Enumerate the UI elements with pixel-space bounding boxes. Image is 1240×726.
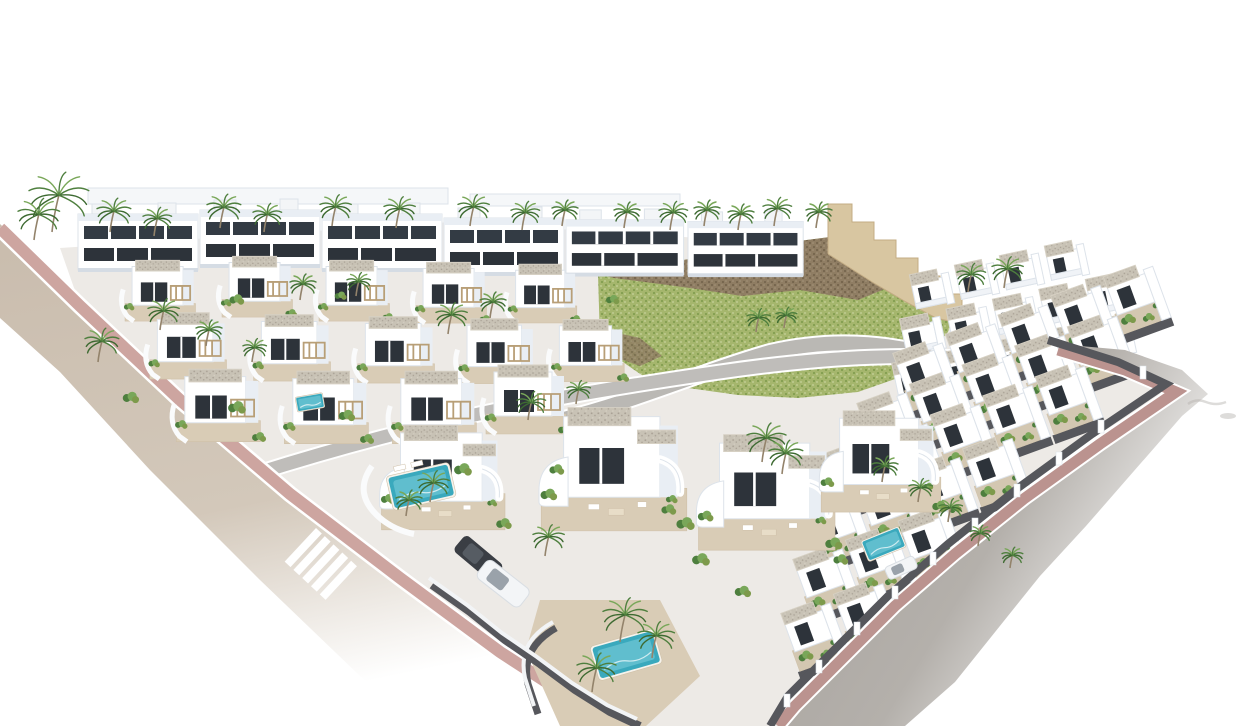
- render-canvas: [0, 0, 1240, 726]
